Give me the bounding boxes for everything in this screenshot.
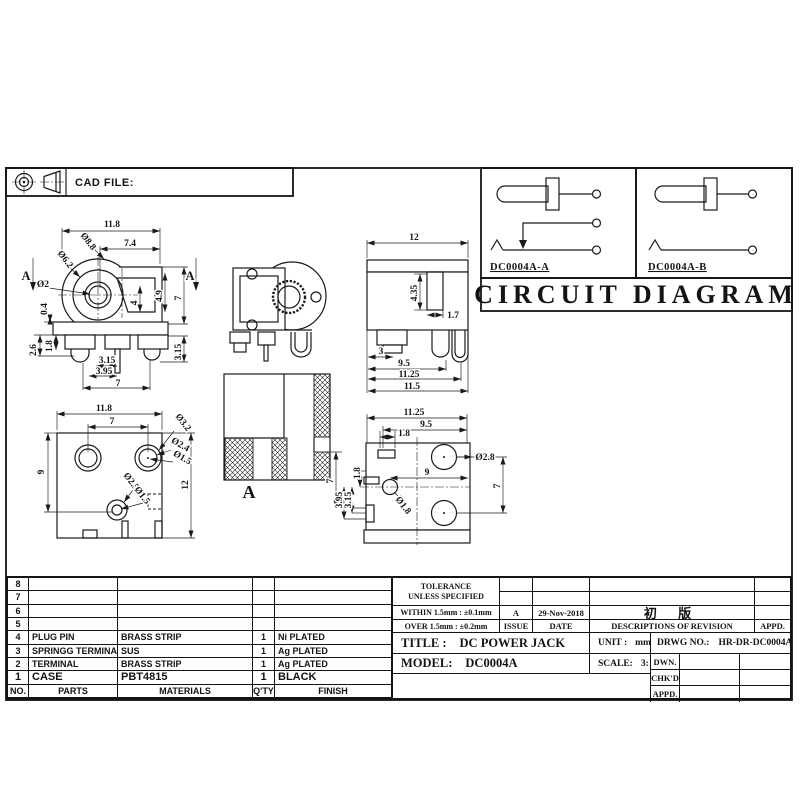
unit-value: mm <box>635 638 650 648</box>
switch-arrow-icon <box>519 240 527 249</box>
parts-header-parts: PARTS <box>29 685 118 698</box>
footprint-dim-label: 11.25 <box>404 408 425 418</box>
revision-cell-empty <box>754 606 790 620</box>
front-dim-label: 3.95 <box>96 367 113 377</box>
parts-row-5-qty <box>253 618 275 631</box>
revision-cell-empty <box>532 592 589 606</box>
parts-header-qty: Q'TY <box>253 685 275 698</box>
bottom-view <box>44 411 195 538</box>
parts-row-2-qty: 1 <box>253 658 275 671</box>
appd2-value-empty <box>679 686 739 702</box>
front-dim-label: 3.15 <box>174 343 184 360</box>
title-cell: TITLE : DC POWER JACK <box>392 633 589 654</box>
drwg-value: HR-DR-DC0004A-00 <box>718 638 790 648</box>
front-dim-label: 7.4 <box>124 239 136 249</box>
section-dim-label: 7 <box>326 478 336 483</box>
parts-row-5-finish <box>275 618 392 631</box>
drwg-label: DRWG NO.: <box>657 638 709 648</box>
scale-label: SCALE: <box>598 659 633 669</box>
appd-label: APPD. <box>754 620 790 633</box>
footprint-dim-label: 7 <box>493 483 503 488</box>
parts-row-7-no: 7 <box>8 591 29 604</box>
parts-row-2-finish: Ag PLATED <box>275 658 392 671</box>
title-block: TOLERANCE UNLESS SPECIFIED WITHIN 1.5mm … <box>392 578 790 698</box>
parts-row-8-materials <box>118 578 253 591</box>
side-dim-label: 12 <box>409 233 419 243</box>
parts-row-2-materials: BRASS STRIP <box>118 658 253 671</box>
plug-barrel-icon <box>655 186 706 202</box>
parts-header-materials: MATERIALS <box>118 685 253 698</box>
parts-row-1-finish: BLACK <box>275 671 392 684</box>
parts-row-3-no: 3 <box>8 645 29 658</box>
parts-header-finish: FINISH <box>275 685 392 698</box>
parts-row-5-no: 5 <box>8 618 29 631</box>
parts-row-1-parts: CASE <box>29 671 118 684</box>
revision-cell-empty <box>754 592 790 606</box>
schematic-label-b: DC0004A-B <box>648 262 707 273</box>
perspective-view <box>230 262 326 361</box>
parts-row-8-no: 8 <box>8 578 29 591</box>
title-block-region: 87654PLUG PINBRASS STRIP1Ni PLATED3SPRIN… <box>6 576 792 700</box>
appd2-label: APPD. <box>650 686 679 702</box>
projection-icon <box>12 170 64 194</box>
footprint-dim-label: 1.8 <box>398 429 410 439</box>
parts-row-6-parts <box>29 605 118 618</box>
revision-cell-empty <box>589 592 754 606</box>
parts-row-5-parts <box>29 618 118 631</box>
parts-row-4-parts: PLUG PIN <box>29 631 118 644</box>
model-value: DC0004A <box>465 656 517 671</box>
front-dim-label: Ø2 <box>37 280 49 290</box>
section-dim-label: 3.15 <box>344 491 354 508</box>
parts-row-8-parts <box>29 578 118 591</box>
parts-row-6-qty <box>253 605 275 618</box>
side-dim-label: 4.35 <box>410 284 420 301</box>
front-dim-label: 11.8 <box>104 220 120 230</box>
revision-cell-empty <box>532 578 589 592</box>
side-dim-label: 11.25 <box>399 370 420 380</box>
spring-contact-icon <box>491 240 503 250</box>
plug-barrel-icon <box>497 186 548 202</box>
front-dim-label: A <box>185 269 194 283</box>
title-value: DC POWER JACK <box>460 636 566 651</box>
section-dim-label: 1.8 <box>353 467 363 479</box>
parts-row-1-no: 1 <box>8 671 29 684</box>
parts-row-7-parts <box>29 591 118 604</box>
appd2-appd-empty <box>739 686 790 702</box>
front-dim-label: 4 <box>130 300 140 305</box>
bottom-dim-label: 9 <box>37 469 47 474</box>
front-dim-label: 7 <box>116 379 121 389</box>
section-dim-label: A <box>243 482 256 502</box>
parts-row-8-qty <box>253 578 275 591</box>
parts-row-1-materials: PBT4815 <box>118 671 253 684</box>
parts-row-1-qty: 1 <box>253 671 275 684</box>
parts-row-2-parts: TERMINAL <box>29 658 118 671</box>
bottom-dim-label: Ø3.2 <box>173 412 193 434</box>
dwn-value-empty <box>679 654 739 670</box>
parts-row-4-no: 4 <box>8 631 29 644</box>
parts-row-3-parts: SPRINGG TERMINAL <box>29 645 118 658</box>
side-dim-label: 11.5 <box>404 382 420 392</box>
parts-row-4-materials: BRASS STRIP <box>118 631 253 644</box>
dwn-appd-empty <box>739 654 790 670</box>
front-dim-label: 7 <box>174 295 184 300</box>
parts-row-5-materials <box>118 618 253 631</box>
parts-row-7-materials <box>118 591 253 604</box>
front-dim-label: 1.8 <box>45 340 55 352</box>
tolerance-over: OVER 1.5mm : ±0.2mm <box>392 620 499 633</box>
empty-cell <box>392 674 650 698</box>
parts-row-6-no: 6 <box>8 605 29 618</box>
date-label: DATE <box>532 620 589 633</box>
parts-row-2-no: 2 <box>8 658 29 671</box>
tolerance-within: WITHIN 1.5mm : ±0.1mm <box>392 606 499 620</box>
revision-cell-empty <box>754 578 790 592</box>
issue-value: A <box>499 606 532 620</box>
scale-value: 3:1 <box>641 659 650 669</box>
revision-cell-empty <box>499 578 532 592</box>
footprint-dim-label: 9.5 <box>420 420 432 430</box>
front-dim-label: A <box>21 269 30 283</box>
bottom-dim-label: 7 <box>110 417 115 427</box>
spring-contact-icon <box>649 240 661 250</box>
unit-cell: UNIT : mm <box>589 633 650 654</box>
parts-row-4-qty: 1 <box>253 631 275 644</box>
front-dim-label: 3.15 <box>99 356 116 366</box>
bottom-dim-label: 11.8 <box>96 404 112 414</box>
revision-label: DESCRIPTIONS OF REVISION <box>589 620 754 633</box>
tolerance-title: TOLERANCE <box>421 582 472 592</box>
drwg-cell: DRWG NO.: HR-DR-DC0004A-00 <box>650 633 790 654</box>
bottom-dim-label: 12 <box>181 480 191 490</box>
side-dim-label: 9.5 <box>398 359 410 369</box>
revision-cell-empty <box>499 592 532 606</box>
front-dim-label: Ø6.2 <box>55 249 75 271</box>
chkd-value-empty <box>679 670 739 686</box>
parts-row-4-finish: Ni PLATED <box>275 631 392 644</box>
footprint-view <box>360 414 507 545</box>
issue-label: ISSUE <box>499 620 532 633</box>
parts-table: 87654PLUG PINBRASS STRIP1Ni PLATED3SPRIN… <box>8 578 392 698</box>
parts-row-8-finish <box>275 578 392 591</box>
scale-cell: SCALE: 3:1 <box>589 654 650 674</box>
parts-row-3-qty: 1 <box>253 645 275 658</box>
parts-row-3-finish: Ag PLATED <box>275 645 392 658</box>
parts-row-7-finish <box>275 591 392 604</box>
revision-value: 初 版 <box>589 606 754 620</box>
cad-file-label: CAD FILE: <box>75 177 134 189</box>
chkd-appd-empty <box>739 670 790 686</box>
parts-row-3-materials: SUS <box>118 645 253 658</box>
parts-header-no: NO. <box>8 685 29 698</box>
footprint-dim-label: Ø2.8 <box>475 453 495 463</box>
schematic-label-a: DC0004A-A <box>490 262 549 273</box>
unit-label: UNIT : <box>598 638 627 648</box>
date-value: 29-Nov-2018 <box>532 606 589 620</box>
side-dim-label: 1.7 <box>447 311 459 321</box>
front-dim-label: 0.4 <box>40 303 50 315</box>
footprint-dim-label: 9 <box>425 468 430 478</box>
tolerance-subtitle: UNLESS SPECIFIED <box>408 592 484 602</box>
cad-file-header: CAD FILE: <box>6 168 293 196</box>
circuit-panel-a: DC0004A-A <box>481 168 636 278</box>
front-dim-label: 2.6 <box>29 344 39 356</box>
circuit-panel-b: DC0004A-B <box>636 168 792 278</box>
bottom-dim-label: Ø1.5 <box>171 449 193 467</box>
model-label: MODEL: <box>401 656 452 671</box>
dwn-label: DWN. <box>650 654 679 670</box>
side-dim-label: 3 <box>379 347 384 357</box>
revision-cell-empty <box>589 578 754 592</box>
chkd-label: CHK'D <box>650 670 679 686</box>
circuit-banner: CIRCUIT DIAGRAM <box>474 278 798 311</box>
title-label: TITLE : <box>401 636 447 651</box>
model-cell: MODEL: DC0004A <box>392 654 589 674</box>
parts-row-6-materials <box>118 605 253 618</box>
parts-row-6-finish <box>275 605 392 618</box>
front-dim-label: 4.9 <box>155 290 165 302</box>
circuit-diagram-title: CIRCUIT DIAGRAM <box>474 280 798 309</box>
parts-row-7-qty <box>253 591 275 604</box>
